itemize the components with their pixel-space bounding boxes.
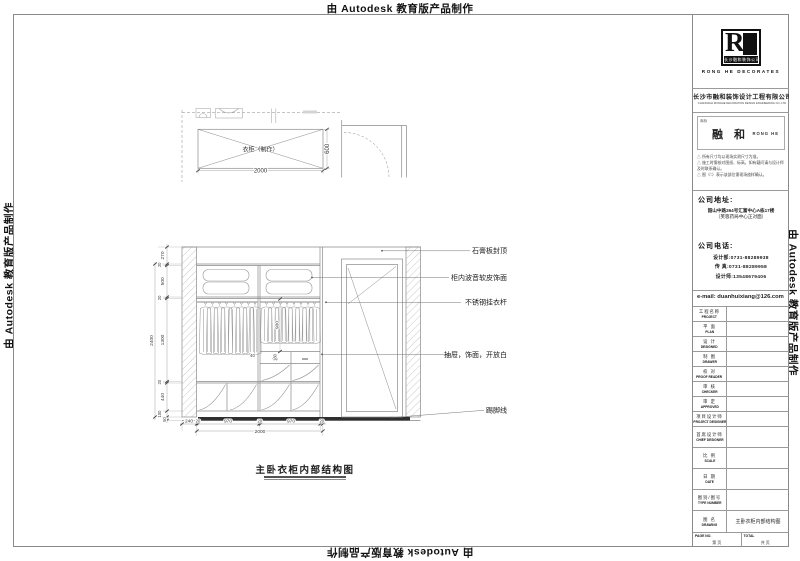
phone-label: 公司电话: bbox=[698, 241, 784, 251]
company-name-cn: 长沙市融和装饰设计工程有限公司 bbox=[693, 92, 789, 101]
elevation-view bbox=[182, 247, 421, 421]
stamp-and-notes: 商标 融 和 RONG HE △ 所有尺寸均以现场实测尺寸为准。 △ 施工时需核… bbox=[693, 112, 789, 190]
table-row: 日 期DATE bbox=[693, 469, 789, 490]
company-email: e-mail: duanhuixiang@126.com bbox=[693, 290, 789, 306]
svg-text:970: 970 bbox=[224, 419, 232, 425]
stamp-name: 融 和 bbox=[712, 126, 749, 142]
page-number-row: PAGE NO. 第 页 TOTAL 共 页 bbox=[693, 533, 789, 547]
stamp-name-en: RONG HE bbox=[752, 131, 779, 136]
svg-text:50: 50 bbox=[162, 417, 167, 422]
note-line: △ 图（□）表示该部位需现场放样确认。 bbox=[697, 172, 785, 178]
svg-text:240: 240 bbox=[185, 419, 193, 425]
svg-text:970: 970 bbox=[287, 419, 295, 425]
signature-table: 工程名称PROJECT 平 面PLAN 设 计DESIGNED 制 图DRAWE… bbox=[693, 306, 789, 547]
cad-sheet: 由 Autodesk 教育版产品制作 由 Autodesk 教育版产品制作 由 … bbox=[0, 0, 800, 561]
logo-monogram: R bbox=[725, 27, 745, 58]
total-cell: TOTAL 共 页 bbox=[741, 533, 790, 547]
cad-drawing: 衣柜（制作） 2000 600 bbox=[0, 0, 800, 561]
callout-gypsum-top: 石膏板封顶 bbox=[472, 246, 507, 255]
table-row: 首席设计师CHIEF DESIGNER bbox=[693, 427, 789, 448]
table-row: 比 例SCALE bbox=[693, 448, 789, 469]
logo-strip-text: 长沙融和装饰公司 bbox=[724, 56, 758, 63]
plan-dim-width: 2000 bbox=[254, 169, 268, 175]
dim-drawer-gap: 40 bbox=[250, 353, 255, 358]
drawing-name-value: 主卧衣柜内部结构图 bbox=[727, 511, 789, 532]
company-phone: 公司电话: 设计部:0731-88289938 传 真:0731-8828995… bbox=[693, 237, 789, 290]
table-row: 工程名称PROJECT bbox=[693, 307, 789, 322]
note-line: △ 施工时需核对图纸、标高，如有疑问请与设计师及时联系确认。 bbox=[697, 160, 785, 172]
plan-view-label: 衣柜（制作） bbox=[242, 146, 278, 154]
svg-text:主卧衣柜内部结构图: 主卧衣柜内部结构图 bbox=[255, 464, 354, 476]
company-address: 公司地址: 韶山中路264号汇富中心A栋17楼 （芙蓉药局中心正对面） bbox=[693, 190, 789, 237]
address-label: 公司地址: bbox=[698, 195, 784, 205]
plan-view bbox=[182, 109, 407, 183]
callout-drawer-finish: 抽屉，饰面，开放白 bbox=[444, 350, 507, 359]
svg-text:20: 20 bbox=[319, 419, 324, 424]
page-no-cell: PAGE NO. 第 页 bbox=[693, 533, 741, 547]
table-row: 平 面PLAN bbox=[693, 322, 789, 337]
brand-stamp: 商标 融 和 RONG HE bbox=[697, 116, 785, 150]
phone-line: 设计师:13548679406 bbox=[698, 273, 784, 280]
dim-overall-width: 2000 bbox=[255, 429, 266, 435]
svg-text:20: 20 bbox=[157, 295, 162, 300]
table-row-drawing-name: 图 名DRAWING主卧衣柜内部结构图 bbox=[693, 511, 789, 533]
svg-text:20: 20 bbox=[196, 419, 201, 424]
table-row: 审 核CHECKER bbox=[693, 382, 789, 397]
table-row: 制 图DRAWER bbox=[693, 352, 789, 367]
door-elevation bbox=[342, 259, 403, 417]
svg-text:270: 270 bbox=[160, 251, 166, 259]
svg-text:20: 20 bbox=[157, 379, 162, 384]
logo-black-block bbox=[743, 33, 757, 55]
title-block: R 长沙融和装饰公司 RONG HE DECORATES 长沙市融和装饰设计工程… bbox=[692, 14, 789, 547]
dim-drawer: 180 bbox=[273, 353, 278, 361]
table-row: 设 计DESIGNED bbox=[693, 337, 789, 352]
svg-text:20: 20 bbox=[257, 419, 262, 424]
rh-logo-icon: R 长沙融和装饰公司 bbox=[721, 29, 761, 66]
table-row: 项目设计师PROJECT DESIGNER bbox=[693, 412, 789, 427]
dim-overall-height: 2400 bbox=[149, 335, 155, 346]
phone-line: 设计部:0731-88289938 bbox=[698, 254, 784, 261]
callout-skirting: 踢脚线 bbox=[486, 406, 507, 415]
callout-steel-rod: 不锈钢挂衣杆 bbox=[465, 298, 507, 307]
svg-text:500: 500 bbox=[160, 277, 166, 285]
phone-line: 传 真:0731-88289958 bbox=[698, 263, 784, 270]
stamp-field-label: 商标 bbox=[700, 119, 707, 124]
dim-hang: 900 bbox=[274, 321, 280, 329]
drawing-title: 主卧衣柜内部结构图 bbox=[255, 464, 354, 480]
company-logo: R 长沙融和装饰公司 RONG HE DECORATES bbox=[693, 14, 789, 88]
table-row: 审 定APPROVED bbox=[693, 397, 789, 412]
svg-text:100: 100 bbox=[157, 410, 162, 418]
logo-subtitle: RONG HE DECORATES bbox=[702, 69, 780, 74]
svg-text:440: 440 bbox=[160, 393, 166, 401]
svg-text:20: 20 bbox=[157, 262, 162, 267]
table-row: 校 对PROOF READER bbox=[693, 367, 789, 382]
table-row: 图别/图号TYPE NUMBER bbox=[693, 490, 789, 511]
plan-dim-depth: 600 bbox=[325, 143, 331, 154]
company-name-en: CHANGSHA RONGHE DECORATION DESIGN ENGINE… bbox=[698, 101, 784, 105]
address-line2: （芙蓉药局中心正对面） bbox=[698, 214, 784, 220]
general-notes: △ 所有尺寸均以现场实测尺寸为准。 △ 施工时需核对图纸、标高，如有疑问请与设计… bbox=[697, 154, 785, 178]
company-names: 长沙市融和装饰设计工程有限公司 CHANGSHA RONGHE DECORATI… bbox=[693, 88, 789, 112]
callout-soft-leather: 柜内波音软皮饰面 bbox=[451, 273, 507, 282]
svg-text:1300: 1300 bbox=[160, 334, 166, 345]
